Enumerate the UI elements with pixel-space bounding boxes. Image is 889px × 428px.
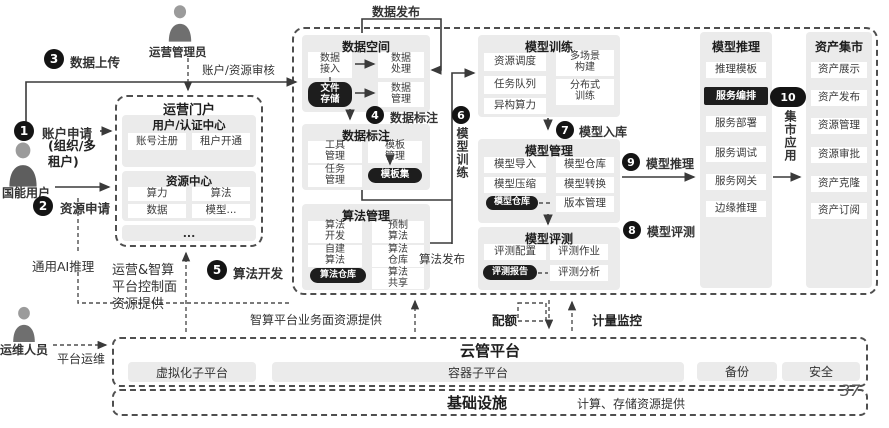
cell-edge-inference: 边缘推理	[706, 201, 766, 217]
cell-model-repo: 模型仓库	[556, 157, 614, 173]
resource-center-title: 资源中心	[122, 173, 256, 189]
cell-tenant-open: 租户开通	[192, 133, 250, 150]
person-icon-ops	[10, 306, 38, 346]
model-mgmt-title: 模型管理	[478, 142, 620, 159]
cell-service-deploy: 服务部署	[706, 116, 766, 132]
cell-resource-approve: 资源审批	[811, 147, 867, 163]
cell-hetero-compute: 异构算力	[484, 98, 546, 114]
pill-service-orchestration: 服务编排	[704, 87, 768, 105]
actor-ops-label: 运维人员	[0, 341, 48, 358]
cell-infer-template: 推理模板	[706, 62, 766, 78]
cell-model-compress: 模型压缩	[484, 177, 546, 193]
step-badge-7: 7	[556, 121, 574, 139]
annotate-title: 数据标注	[302, 127, 430, 144]
infra-note: 计算、存储资源提供	[577, 395, 685, 412]
label-algo-publish: 算法发布	[419, 251, 465, 267]
model-eval-title: 模型评测	[478, 230, 620, 247]
step-label-model-store: 模型入库	[579, 123, 627, 140]
cell-asset-subscribe: 资产订阅	[811, 203, 867, 219]
label-control-plane: 运营&智算 平台控制面 资源提供	[112, 263, 177, 314]
cell-tool-manage: 工具 管理	[308, 141, 362, 163]
bar-backup: 备份	[697, 362, 777, 381]
pill-eval-report: 评测报告	[483, 265, 537, 280]
label-data-publish: 数据发布	[372, 3, 420, 20]
market-title: 资产集市	[806, 38, 872, 55]
step-badge-9: 9	[622, 153, 640, 171]
person-icon-admin	[166, 4, 194, 46]
cell-service-debug: 服务调试	[706, 146, 766, 162]
step-badge-8: 8	[623, 221, 641, 239]
cell-template-manage: 模板 管理	[368, 141, 422, 163]
step-label-account-apply-sub: (组织/多 租户)	[48, 138, 112, 169]
cell-model: 模型...	[192, 204, 250, 218]
cell-data-process: 数据 处理	[378, 52, 424, 78]
cell-task-queue: 任务队列	[484, 76, 546, 94]
page-number: 37	[840, 381, 860, 400]
step-badge-5: 5	[207, 260, 227, 280]
pill-model-repo: 模型仓库	[486, 196, 538, 210]
cell-asset-clone: 资产克隆	[811, 176, 867, 192]
cell-algorithm: 算法	[192, 187, 250, 201]
step-label-model-eval: 模型评测	[647, 223, 695, 240]
cell-compute-power: 算力	[128, 187, 186, 201]
pill-file-store: 文件 存储	[308, 82, 352, 107]
cell-algo-share: 算法 共享	[372, 268, 424, 289]
cell-selfbuilt-algo: 自建 算法	[308, 245, 362, 267]
cell-distributed-train: 分布式 训练	[556, 79, 614, 105]
step-label-resource-apply: 资源申请	[60, 198, 110, 217]
diagram-canvas: 账号注册 租户开通 算力 算法 数据 模型... ... 数据 接入 数据 处理…	[0, 0, 889, 428]
step-label-model-train: 模型训练	[454, 127, 471, 197]
step-badge-10: 10	[770, 87, 806, 107]
step-label-market-app: 集市应用	[782, 110, 799, 180]
cell-model-convert: 模型转换	[556, 177, 614, 193]
cell-account-register: 账号注册	[128, 133, 186, 150]
bar-container: 容器子平台	[272, 362, 684, 382]
portal-more: ...	[122, 225, 256, 241]
cell-asset-display: 资产展示	[811, 62, 867, 78]
cell-task-manage: 任务 管理	[308, 165, 362, 187]
algo-title: 算法管理	[302, 207, 430, 224]
cell-asset-publish: 资产发布	[811, 90, 867, 106]
step-badge-6: 6	[452, 106, 470, 124]
bar-security: 安全	[782, 362, 860, 381]
cell-algo-dev: 算法 开发	[308, 221, 362, 243]
step-label-data-annotate: 数据标注	[390, 109, 438, 126]
step-label-data-upload: 数据上传	[70, 52, 120, 71]
label-general-ai: 通用AI推理	[32, 256, 94, 275]
label-platform-ops: 平台运维	[57, 350, 105, 367]
cell-service-gateway: 服务网关	[706, 174, 766, 190]
step-badge-1: 1	[14, 121, 34, 141]
cell-algo-repo: 算法 仓库	[372, 245, 424, 267]
step-badge-2: 2	[33, 196, 53, 216]
train-title: 模型训练	[478, 38, 620, 55]
label-metering: 计量监控	[592, 310, 642, 329]
cell-data-access: 数据 接入	[308, 52, 352, 78]
cell-eval-analysis: 评测分析	[550, 265, 608, 281]
auth-center-title: 用户/认证中心	[122, 117, 256, 133]
pill-algo-repo: 算法仓库	[310, 268, 366, 283]
cell-prebuilt-algo: 预制 算法	[372, 221, 424, 243]
cell-version-manage: 版本管理	[556, 196, 614, 212]
portal-title: 运营门户	[115, 99, 263, 118]
step-label-model-infer: 模型推理	[646, 155, 694, 172]
label-business-plane: 智算平台业务面资源提供	[250, 311, 382, 328]
cloud-title: 云管平台	[112, 340, 868, 361]
inference-title: 模型推理	[700, 38, 772, 55]
bar-virtualization: 虚拟化子平台	[128, 362, 256, 382]
cell-resource-schedule: 资源调度	[484, 53, 546, 71]
step-label-algo-dev: 算法开发	[233, 263, 283, 282]
cell-model-import: 模型导入	[484, 157, 546, 173]
cell-resource-manage: 资源管理	[811, 118, 867, 134]
dataspace-title: 数据空间	[302, 38, 430, 55]
infra-title: 基础设施	[447, 392, 507, 413]
cell-data: 数据	[128, 204, 186, 218]
label-quota: 配额	[492, 310, 517, 329]
actor-admin-label: 运营管理员	[149, 44, 207, 60]
step-badge-4: 4	[366, 106, 384, 124]
pill-template-set: 模板集	[368, 168, 422, 183]
cell-data-manage: 数据 管理	[378, 82, 424, 107]
step-badge-3: 3	[44, 49, 64, 69]
label-review: 账户/资源审核	[202, 62, 275, 78]
